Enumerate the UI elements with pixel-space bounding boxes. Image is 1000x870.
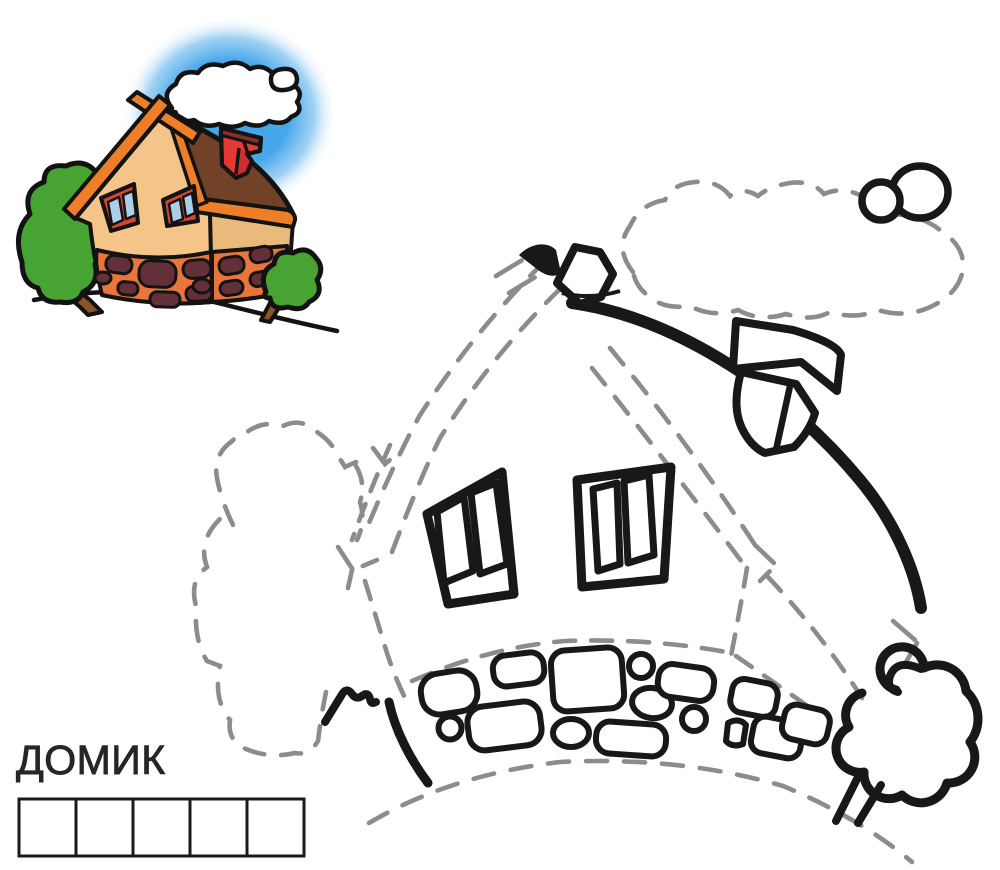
svg-text:ДОМИК: ДОМИК [16,737,166,783]
